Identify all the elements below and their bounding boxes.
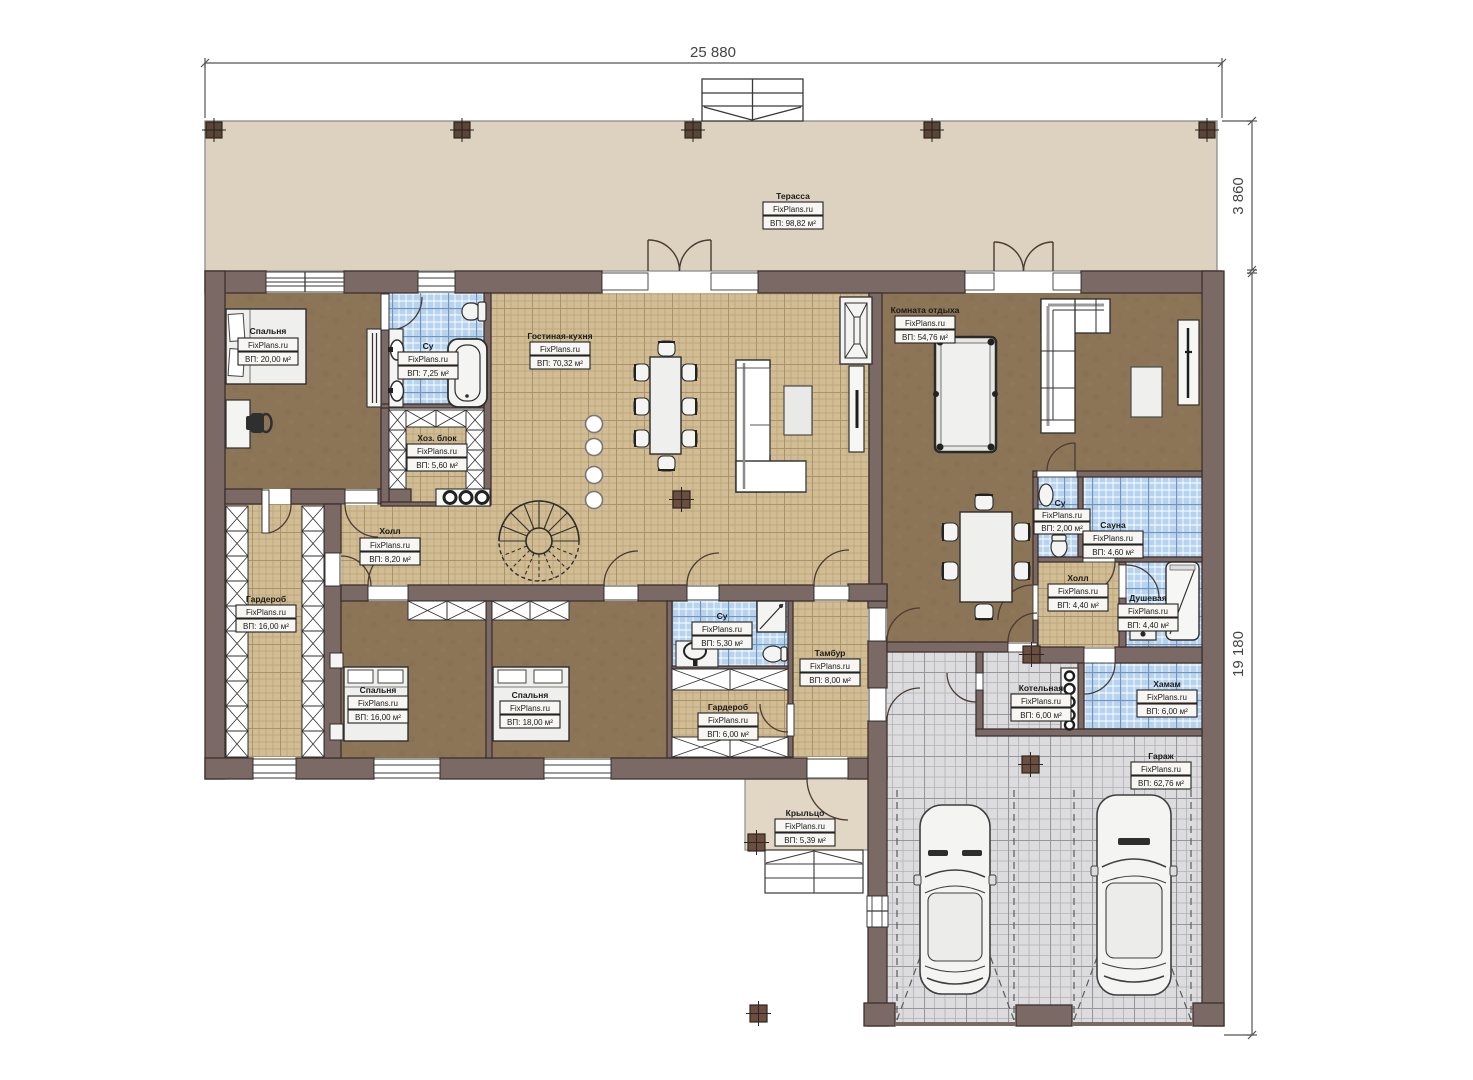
svg-text:ВП: 5,39 м²: ВП: 5,39 м² (784, 836, 826, 845)
svg-text:Су: Су (1055, 498, 1066, 508)
svg-text:FixPlans.ru: FixPlans.ru (370, 541, 410, 550)
svg-text:Гардероб: Гардероб (246, 594, 286, 604)
svg-text:ВП: 5,60 м²: ВП: 5,60 м² (416, 461, 458, 470)
svg-text:ВП: 5,30 м²: ВП: 5,30 м² (701, 639, 743, 648)
svg-text:Хамам: Хамам (1153, 679, 1181, 689)
svg-text:Гостиная-кухня: Гостиная-кухня (527, 331, 592, 341)
svg-text:Су: Су (423, 341, 434, 351)
svg-text:ВП: 70,32 м²: ВП: 70,32 м² (537, 359, 583, 368)
svg-text:FixPlans.ru: FixPlans.ru (540, 345, 580, 354)
svg-text:Сауна: Сауна (1100, 520, 1126, 530)
svg-text:ВП: 16,00 м²: ВП: 16,00 м² (355, 713, 401, 722)
svg-text:ВП: 62,76 м²: ВП: 62,76 м² (1138, 779, 1184, 788)
svg-text:ВП: 6,00 м²: ВП: 6,00 м² (1020, 711, 1062, 720)
svg-text:Су: Су (717, 611, 728, 621)
svg-text:FixPlans.ru: FixPlans.ru (810, 662, 850, 671)
svg-text:Котельная: Котельная (1019, 683, 1064, 693)
svg-text:ВП: 16,00 м²: ВП: 16,00 м² (243, 622, 289, 631)
svg-text:Крыльцо: Крыльцо (786, 808, 825, 818)
svg-text:ВП: 18,00 м²: ВП: 18,00 м² (507, 718, 553, 727)
svg-text:Спальня: Спальня (250, 326, 287, 336)
svg-text:FixPlans.ru: FixPlans.ru (905, 319, 945, 328)
svg-text:ВП: 20,00 м²: ВП: 20,00 м² (245, 355, 291, 364)
svg-text:ВП: 8,20 м²: ВП: 8,20 м² (369, 555, 411, 564)
svg-text:Гардероб: Гардероб (708, 702, 748, 712)
svg-text:FixPlans.ru: FixPlans.ru (1093, 534, 1133, 543)
svg-text:ВП: 6,00 м²: ВП: 6,00 м² (707, 730, 749, 739)
svg-text:Комната отдыха: Комната отдыха (891, 305, 960, 315)
svg-text:FixPlans.ru: FixPlans.ru (248, 341, 288, 350)
svg-text:ВП: 7,25 м²: ВП: 7,25 м² (407, 369, 449, 378)
svg-text:FixPlans.ru: FixPlans.ru (246, 608, 286, 617)
svg-text:FixPlans.ru: FixPlans.ru (358, 699, 398, 708)
svg-text:FixPlans.ru: FixPlans.ru (408, 355, 448, 364)
svg-text:3 860: 3 860 (1230, 177, 1247, 215)
svg-text:FixPlans.ru: FixPlans.ru (1021, 697, 1061, 706)
svg-text:FixPlans.ru: FixPlans.ru (702, 625, 742, 634)
svg-text:Гараж: Гараж (1148, 751, 1174, 761)
svg-text:FixPlans.ru: FixPlans.ru (1042, 511, 1082, 520)
svg-text:FixPlans.ru: FixPlans.ru (785, 822, 825, 831)
svg-text:FixPlans.ru: FixPlans.ru (708, 716, 748, 725)
svg-text:Хоз. блок: Хоз. блок (417, 433, 457, 443)
svg-text:FixPlans.ru: FixPlans.ru (1147, 693, 1187, 702)
svg-text:Душевая: Душевая (1129, 593, 1167, 603)
svg-text:Холл: Холл (379, 526, 400, 536)
svg-text:ВП: 6,00 м²: ВП: 6,00 м² (1146, 707, 1188, 716)
svg-text:FixPlans.ru: FixPlans.ru (417, 447, 457, 456)
svg-text:FixPlans.ru: FixPlans.ru (1058, 587, 1098, 596)
svg-text:Холл: Холл (1067, 573, 1088, 583)
svg-text:ВП: 54,76 м²: ВП: 54,76 м² (902, 333, 948, 342)
svg-text:Спальня: Спальня (360, 685, 397, 695)
svg-text:25 880: 25 880 (690, 44, 736, 61)
svg-text:19 180: 19 180 (1230, 631, 1247, 677)
svg-text:ВП: 98,82 м²: ВП: 98,82 м² (770, 219, 816, 228)
svg-text:ВП: 2,00 м²: ВП: 2,00 м² (1041, 524, 1083, 533)
svg-text:ВП: 4,40 м²: ВП: 4,40 м² (1057, 601, 1099, 610)
svg-text:FixPlans.ru: FixPlans.ru (1141, 765, 1181, 774)
svg-text:Тамбур: Тамбур (815, 648, 846, 658)
svg-text:Терасса: Терасса (776, 191, 810, 201)
svg-text:Спальня: Спальня (512, 690, 549, 700)
svg-text:ВП: 4,60 м²: ВП: 4,60 м² (1092, 548, 1134, 557)
svg-text:ВП: 8,00 м²: ВП: 8,00 м² (809, 676, 851, 685)
svg-text:FixPlans.ru: FixPlans.ru (510, 704, 550, 713)
svg-text:FixPlans.ru: FixPlans.ru (773, 205, 813, 214)
svg-text:FixPlans.ru: FixPlans.ru (1128, 607, 1168, 616)
svg-text:ВП: 4,40 м²: ВП: 4,40 м² (1127, 621, 1169, 630)
